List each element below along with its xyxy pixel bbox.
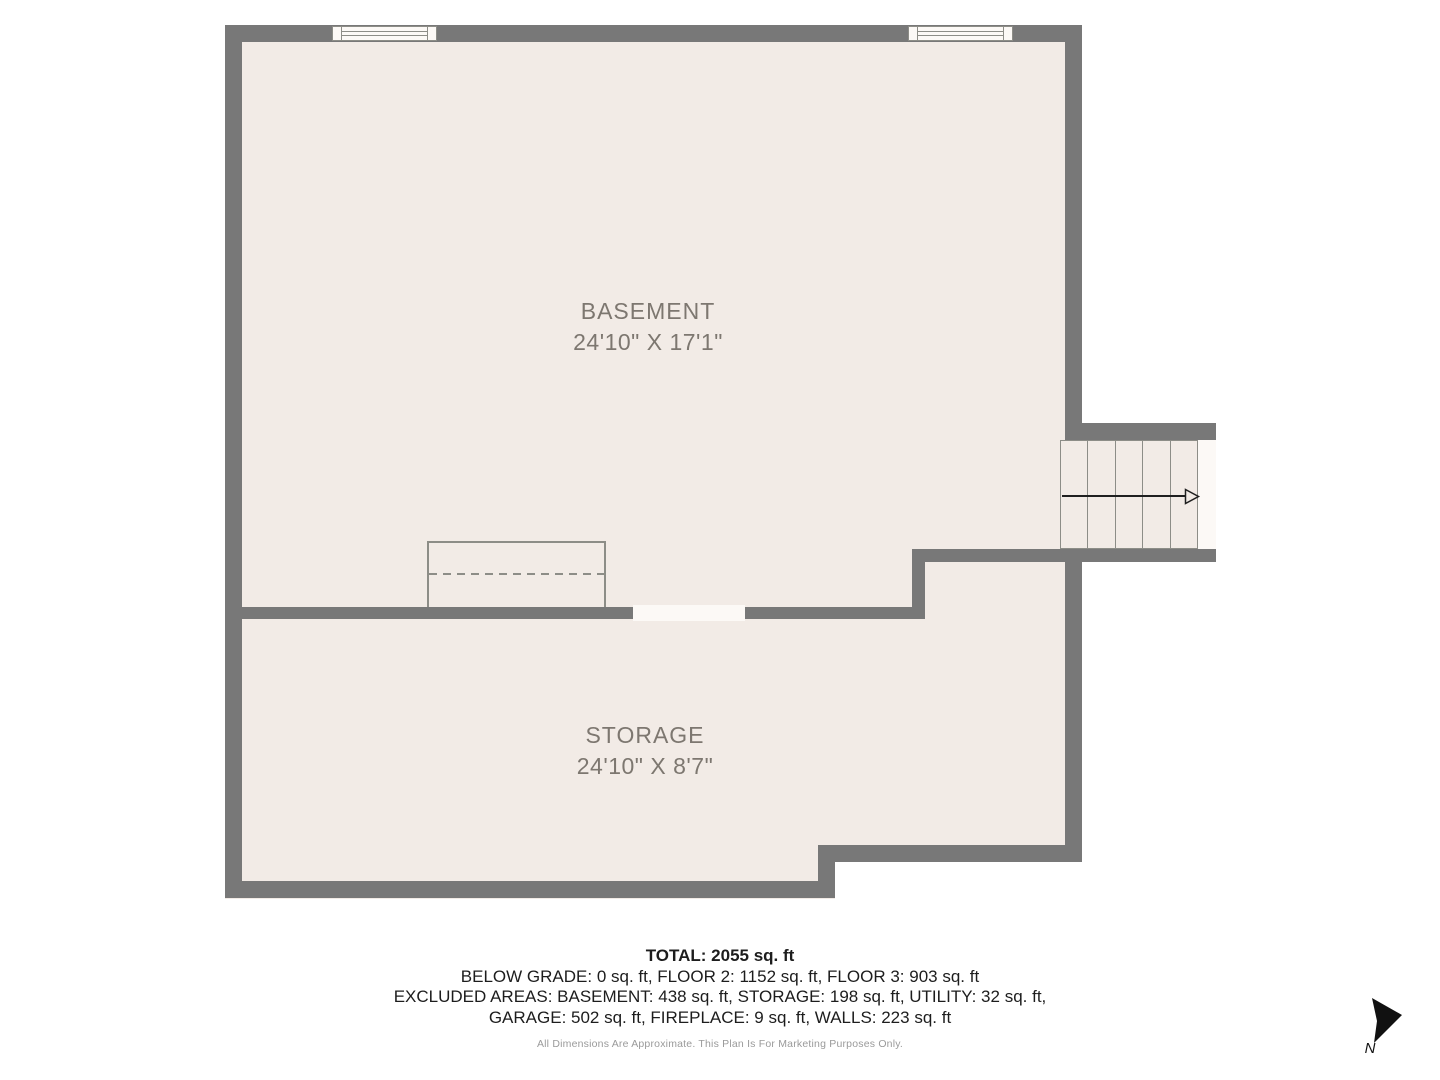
wall-bottom-right — [835, 845, 1082, 862]
window-jamb — [341, 27, 342, 40]
wall-bottom-left — [225, 881, 835, 898]
wall-right-lower — [1065, 562, 1082, 862]
room-name: STORAGE — [445, 723, 845, 747]
window-icon — [908, 26, 1013, 41]
room-label-storage: STORAGE 24'10" X 8'7" — [445, 723, 845, 778]
summary-line: BELOW GRADE: 0 sq. ft, FLOOR 2: 1152 sq.… — [0, 967, 1440, 988]
north-label: N — [1356, 1040, 1384, 1057]
window-jamb — [917, 27, 918, 40]
area-summary: TOTAL: 2055 sq. ft BELOW GRADE: 0 sq. ft… — [0, 946, 1440, 1050]
wall-right-upper — [1065, 42, 1082, 423]
window-jamb — [427, 27, 428, 40]
total-area: TOTAL: 2055 sq. ft — [0, 946, 1440, 967]
wall-left — [225, 25, 242, 898]
room-label-basement: BASEMENT 24'10" X 17'1" — [448, 299, 848, 354]
dashed-line — [429, 573, 604, 575]
window-jamb — [1003, 27, 1004, 40]
wall-stair-nook-top — [1065, 423, 1216, 440]
stair-direction-arrow-icon — [1184, 488, 1201, 505]
window-glass-line — [918, 31, 1003, 32]
window-glass-line — [342, 31, 427, 32]
stair-direction-line — [1062, 495, 1185, 497]
wall-stair-nook-bottom — [912, 549, 1216, 562]
wall-divider — [242, 607, 925, 619]
under-stair-outline — [427, 541, 606, 607]
floor-plan-canvas: BASEMENT 24'10" X 17'1" STORAGE 24'10" X… — [0, 0, 1440, 1080]
floor-storage-right — [835, 619, 1082, 862]
disclaimer-text: All Dimensions Are Approximate. This Pla… — [0, 1038, 1440, 1050]
window-icon — [332, 26, 437, 41]
room-dimensions: 24'10" X 8'7" — [445, 754, 845, 778]
summary-line: GARAGE: 502 sq. ft, FIREPLACE: 9 sq. ft,… — [0, 1008, 1440, 1029]
summary-line: EXCLUDED AREAS: BASEMENT: 438 sq. ft, ST… — [0, 987, 1440, 1008]
north-arrow-icon — [1369, 996, 1405, 1046]
room-dimensions: 24'10" X 17'1" — [448, 330, 848, 354]
room-name: BASEMENT — [448, 299, 848, 323]
door-opening — [633, 605, 745, 621]
window-glass-line — [918, 35, 1003, 36]
window-glass-line — [342, 35, 427, 36]
